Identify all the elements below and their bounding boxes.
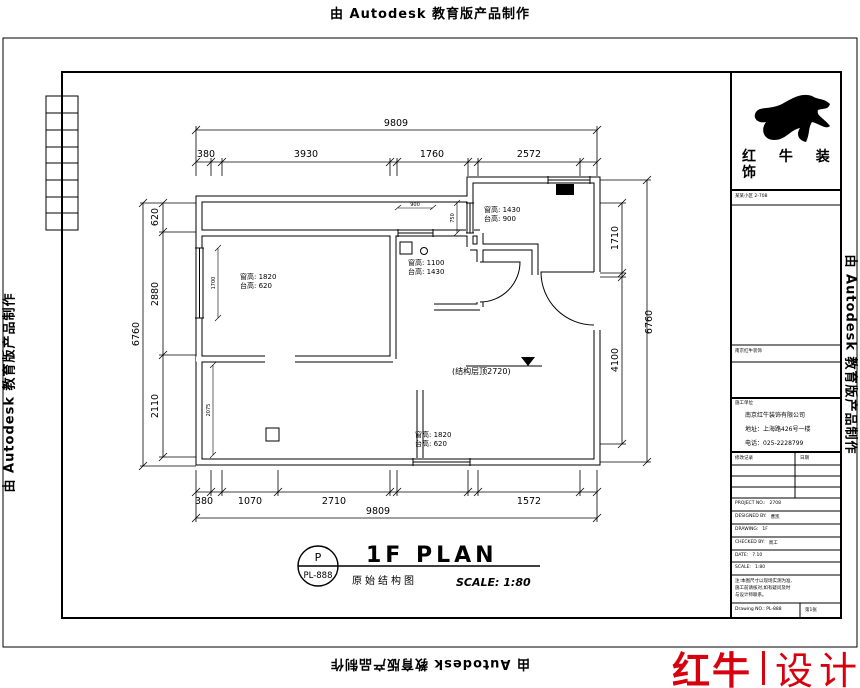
dim-left-3: 2110 (150, 394, 161, 418)
title-bubble-top: P (315, 551, 322, 564)
tb-builder-row: 施工单位 (735, 400, 753, 406)
tb-dept-row: 南京红牛装饰 (735, 348, 762, 354)
stamp-right: 由 Autodesk 教育版产品制作 (843, 195, 860, 515)
dim-bot-4: 1572 (517, 496, 541, 507)
footer-brand-divider (762, 651, 765, 685)
ann-left-2: 台高: 620 (240, 281, 272, 290)
footer-brand-logo: 红牛 设计 (672, 640, 860, 688)
tb-field-scale: SCALE: 1:80 (735, 565, 765, 570)
tb-note-3: 与设计师联系。 (735, 592, 767, 598)
dim-small-2: 750 (450, 213, 456, 223)
bull-logo-icon (755, 95, 830, 142)
tb-sheet-no: 第1张 (805, 607, 817, 613)
tb-phone: 电话：025-2228799 (745, 438, 803, 447)
stamp-top: 由 Autodesk 教育版产品制作 (0, 3, 860, 22)
bath-door (480, 262, 520, 302)
tb-field-label: DATE: (735, 553, 748, 558)
footer-brand-part1: 红牛 (672, 640, 752, 688)
dim-small-3: 1700 (211, 277, 217, 290)
tb-drawing-no: Drawing NO.: PL-888 (735, 607, 782, 612)
plan-scale: SCALE: 1:80 (456, 576, 531, 589)
tb-rev-date: 日期 (800, 455, 809, 461)
tb-rev-label: 修改记录 (735, 455, 753, 461)
dim-bot-2: 1070 (238, 496, 262, 507)
tb-field-value: 1F (762, 527, 767, 532)
walls (196, 180, 597, 462)
dim-top-total: 9809 (384, 118, 408, 129)
tb-address: 地址：上海路426号一楼 (745, 424, 810, 433)
footer-brand-part2: 设计 (775, 640, 860, 688)
dim-right-1: 1710 (610, 226, 621, 250)
tb-field-value: 曹凯 (771, 514, 780, 520)
dim-bot-1: 380 (195, 496, 213, 507)
dim-small-4: 2075 (206, 404, 212, 417)
window-kitchen (548, 176, 590, 184)
tb-field-label: DESIGNED BY: (735, 514, 767, 520)
dim-right-2: 4100 (610, 348, 621, 372)
tb-field-value: 周工 (769, 540, 778, 546)
stamp-left: 由 Autodesk 教育版产品制作 (0, 233, 18, 553)
dim-bot-total: 9809 (366, 506, 390, 517)
dim-small-1: 900 (410, 202, 420, 208)
plan-title: 1F PLAN (366, 543, 498, 568)
tb-field-checked: CHECKED BY: 周工 (735, 540, 778, 546)
ann-ceiling: (结构层顶2720) (452, 366, 511, 376)
cad-linework: 9809 380 3930 1760 2572 380 1070 2710 15… (0, 0, 860, 688)
tb-field-designed: DESIGNED BY: 曹凯 (735, 514, 780, 520)
dim-top-4: 2572 (517, 149, 541, 160)
entry-door (541, 272, 594, 325)
window-bottom (413, 458, 470, 466)
tb-field-label: DRAWING: (735, 527, 758, 532)
tb-note-1: 注:本图尺寸以现场实测为准, (735, 578, 792, 584)
flue-block (556, 184, 574, 195)
title-bubble-bottom: PL-888 (303, 571, 332, 581)
window-mid (398, 229, 433, 237)
tb-field-label: CHECKED BY: (735, 540, 765, 546)
column-1 (400, 242, 412, 254)
window-left (195, 248, 204, 318)
tb-field-label: PROJECT NO.: (735, 501, 766, 506)
tb-field-label: SCALE: (735, 565, 751, 570)
tb-field-value: 2708 (770, 501, 781, 506)
window-vert (466, 203, 474, 233)
tb-field-project-no: PROJECT NO.: 2708 (735, 501, 781, 506)
dim-top-3: 1760 (420, 149, 444, 160)
ann-mid-1: 窗高: 1100 (408, 258, 444, 267)
drawing-sheet: 9809 380 3930 1760 2572 380 1070 2710 15… (0, 0, 860, 688)
ann-kitchen-2: 台高: 900 (484, 214, 516, 223)
ann-bottom-2: 台高: 620 (415, 439, 447, 448)
ann-left-1: 窗高: 1820 (240, 272, 276, 281)
plan-subtitle: 原始结构图 (352, 574, 417, 587)
dim-right-total: 6760 (644, 310, 655, 334)
dim-left-total: 6760 (131, 322, 142, 346)
tb-company: 南京红牛装饰有限公司 (745, 410, 805, 419)
dim-top-2: 3930 (294, 149, 318, 160)
dim-top-1: 380 (197, 149, 215, 160)
tb-field-value: 1:80 (755, 565, 765, 570)
ann-bottom-1: 窗高: 1820 (415, 430, 451, 439)
tb-field-date: DATE: 7.10 (735, 553, 762, 558)
ann-mid-2: 台高: 1430 (408, 267, 444, 276)
ann-kitchen-1: 窗高: 1430 (484, 205, 520, 214)
tb-project-row: 某某小区 2-708 (735, 193, 768, 199)
column-2 (266, 428, 279, 441)
annotation-circle (421, 248, 428, 255)
tb-field-drawing: DRAWING: 1F (735, 527, 768, 532)
main-border (62, 72, 841, 618)
tb-field-value: 7.10 (752, 553, 762, 558)
tb-note-2: 施工前请核对,如有疑问及时 (735, 585, 790, 591)
brand-name-line2: 饰 (742, 162, 765, 182)
corner-ref-table (46, 96, 78, 230)
elevation-triangle-icon (521, 357, 535, 366)
dim-bot-3: 2710 (322, 496, 346, 507)
dim-left-1: 620 (150, 208, 161, 226)
dim-left-2: 2880 (150, 282, 161, 306)
drawing-title: P PL-888 1F PLAN 原始结构图 SCALE: 1:80 (298, 543, 540, 589)
